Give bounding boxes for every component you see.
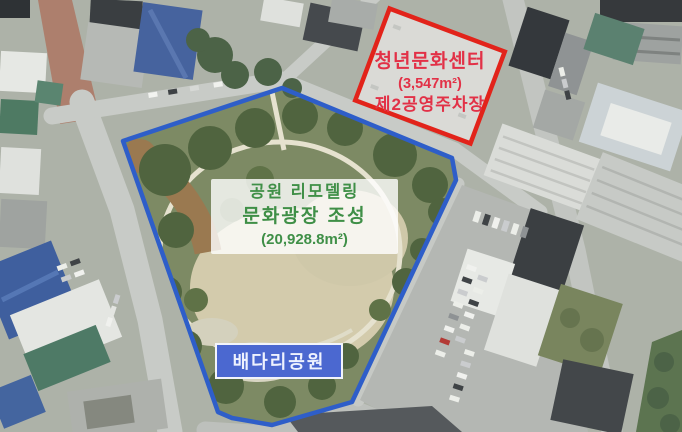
youth-center-subtitle: 제2공영주차장 [352, 94, 508, 116]
plaza-area: (20,928.8m²) [211, 229, 398, 250]
youth-center-label: 청년문화센터 (3,547m²) 제2공영주차장 [352, 50, 508, 116]
park-name-text: 배다리공원 [233, 348, 326, 374]
plaza-line2: 문화광장 조성 [211, 204, 398, 229]
youth-center-title: 청년문화센터 [352, 50, 508, 74]
plaza-line1: 공원 리모델링 [211, 181, 398, 204]
youth-center-area: (3,547m²) [352, 74, 508, 94]
aerial-map: 청년문화센터 (3,547m²) 제2공영주차장 공원 리모델링 문화광장 조성… [0, 0, 682, 432]
plaza-label: 공원 리모델링 문화광장 조성 (20,928.8m²) [211, 179, 398, 254]
park-name-label: 배다리공원 [215, 343, 343, 379]
